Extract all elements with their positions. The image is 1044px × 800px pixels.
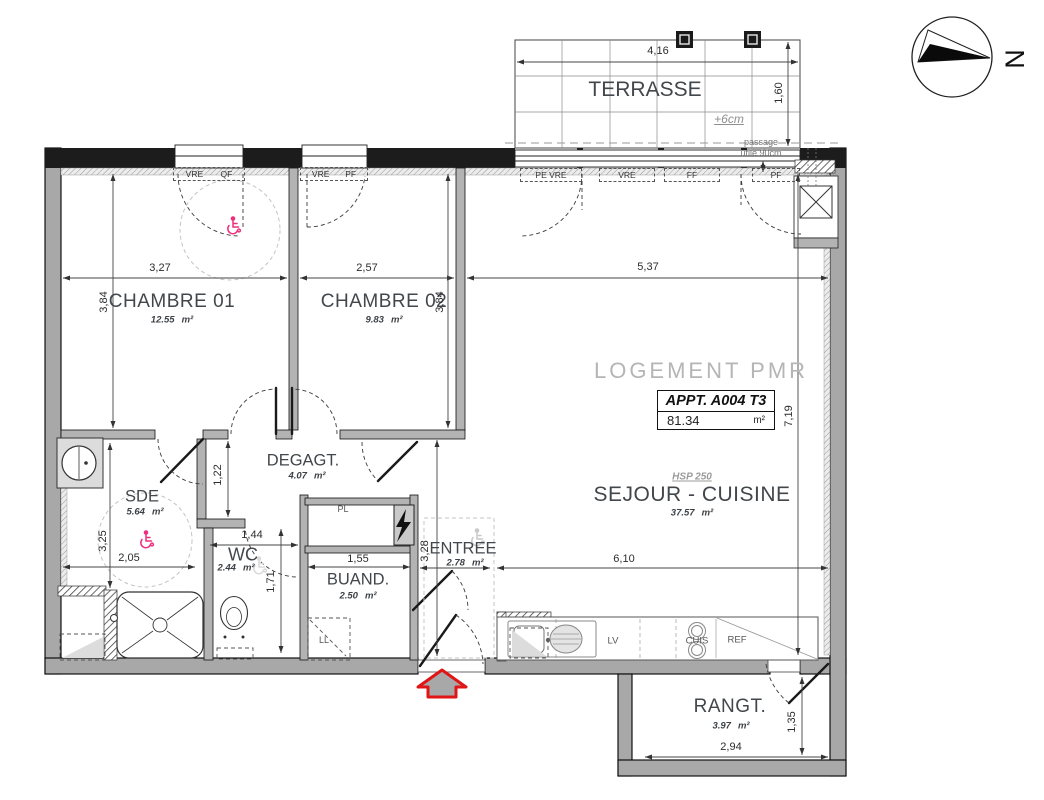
room-label-buand: BUAND. [327,571,389,590]
dim-terrace-width: 4,16 [647,45,668,57]
room-label-sde: SDE [125,488,159,507]
room-label-rangt: RANGT. [694,696,767,718]
area-value: 12.55 [151,315,175,326]
dim-terrace-height: 1,60 [773,82,785,103]
passage-note-line1: passage [740,137,781,148]
shower [111,592,204,658]
area-value: 5.64 [126,507,145,518]
entry-arrow [418,670,466,697]
apartment-tag: APPT. A004 T3 [658,391,774,412]
room-area-sde: 5.64m² [126,507,163,518]
room-area-buand: 2.50m² [339,591,376,602]
dim-buand-width: 1,55 [347,553,368,565]
window-type: VRE [186,169,203,179]
dim-wc-corridor: 1,22 [212,464,224,485]
dim-rangt-width: 2,94 [720,741,741,753]
north-label: N [999,49,1030,69]
closet-label: PL [337,504,348,514]
area-unit: m² [243,563,255,574]
dim-sde-height: 3,25 [97,530,109,551]
electrical-panel [394,505,414,545]
plan-drawing [0,0,1044,800]
room-area-sejour: 37.57m² [671,508,713,519]
north-arrow-icon [912,17,992,97]
pmr-watermark: LOGEMENT PMR [594,358,808,384]
room-area-wc: 2.44m² [217,563,254,574]
room-label-entree: ENTREE [430,540,497,559]
window-label-chambre2: VRE PF [300,167,368,181]
area-unit: m² [702,508,714,519]
terrace-level-note: +6cm [714,112,744,126]
area-unit: m² [152,507,164,518]
area-value: 2.50 [339,591,358,602]
dim-chambre1-width: 3,27 [149,262,170,274]
wheelchair-icon-sde [141,530,154,548]
dim-chambre2-height: 3,84 [434,291,446,312]
interior-walls [61,168,465,660]
apartment-tag-box: APPT. A004 T3 81.34 m² [657,390,775,430]
area-value: 2.78 [446,558,465,569]
door-leaf-entree-sejour [413,571,452,610]
window-label-chambre1: VRE QF [173,167,245,181]
dim-rangt-height: 1,35 [786,711,798,732]
room-label-terrasse: TERRASSE [588,78,701,102]
area-unit: m² [738,721,750,732]
window-type: VRE [312,169,329,179]
room-area-rangt: 3.97m² [712,721,749,732]
washbasin [57,438,103,488]
area-unit: m² [472,558,484,569]
window-type: QF [221,169,233,179]
total-area-unit: m² [753,415,765,426]
dim-chambre1-height: 3,84 [98,291,110,312]
window-label-terrace2: VRE [599,168,655,182]
hsp-note: HSP 250 [672,472,712,483]
room-label-sejour: SEJOUR - CUISINE [593,483,790,507]
window-type: PE VRE [535,170,566,180]
window-type: FF [687,170,697,180]
dim-wc-height: 1,71 [265,571,277,592]
window-type: PF [345,169,356,179]
passage-note-line2: utile 90cm [740,148,781,159]
area-value: 4.07 [288,471,307,482]
dim-chambre2-width: 2,57 [356,262,377,274]
wheelchair-icon-chambre1 [228,216,241,234]
sde-cabinet [60,634,105,660]
dim-sejour-height: 7,19 [783,405,795,426]
room-area-degagt: 4.07m² [288,471,325,482]
total-area-value: 81.34 [667,413,700,428]
room-area-chambre1: 12.55m² [151,315,193,326]
fridge-label: REF [728,635,747,646]
door-leaf-degagt [378,442,417,481]
cooktop-label: CUIS [686,636,709,647]
room-area-entree: 2.78m² [446,558,483,569]
area-value: 9.83 [365,315,384,326]
area-value: 3.97 [712,721,731,732]
area-unit: m² [365,591,377,602]
dim-sejour-bottom: 6,10 [613,553,634,565]
kitchen-counter [497,617,818,660]
window-label-terrace3: FF [664,168,720,182]
window-type: PF [771,170,782,180]
dim-sejour-width: 5,37 [637,261,658,273]
area-unit: m² [314,471,326,482]
dishwasher-label: LV [608,636,619,647]
room-label-chambre2: CHAMBRE 02 [321,291,447,313]
dim-wc-width: 1,44 [241,529,262,541]
area-unit: m² [182,315,194,326]
passage-note: passage utile 90cm [740,137,781,159]
toilet [217,597,253,660]
area-value: 2.44 [217,563,236,574]
area-unit: m² [391,315,403,326]
apartment-total-area: 81.34 m² [658,412,774,429]
floor-plan: TERRASSE 4,16 1,60 +6cm passage utile 90… [0,0,1044,800]
room-area-chambre2: 9.83m² [365,315,402,326]
window-label-terrace4: PF [752,168,800,182]
room-label-chambre1: CHAMBRE 01 [109,291,235,313]
dim-sde-width: 2,05 [118,552,139,564]
window-label-terrace1: PE VRE [520,168,582,182]
room-label-degagt: DEGAGT. [267,452,339,471]
window-type: VRE [618,170,635,180]
area-value: 37.57 [671,508,695,519]
washing-machine-label: LL [319,635,329,645]
